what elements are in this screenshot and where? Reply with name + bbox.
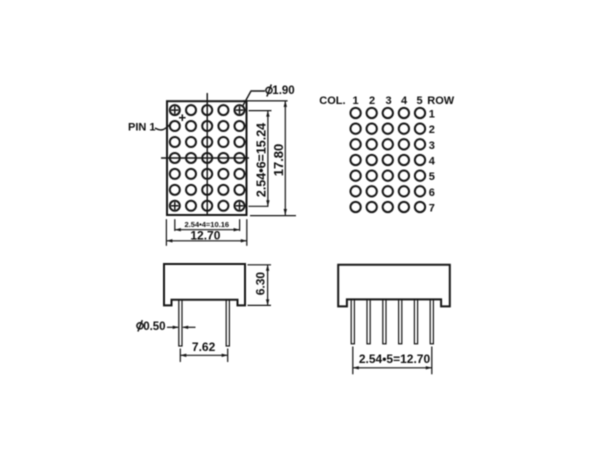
svg-text:PIN 1: PIN 1 (128, 122, 156, 134)
svg-text:17.80: 17.80 (271, 144, 286, 177)
svg-text:4: 4 (401, 95, 408, 107)
svg-text:1: 1 (352, 95, 358, 107)
svg-text:ROW: ROW (427, 95, 455, 107)
svg-text:6.30: 6.30 (253, 272, 267, 296)
svg-text:2.54•6=15.24: 2.54•6=15.24 (255, 123, 269, 197)
svg-text:2: 2 (429, 124, 435, 136)
svg-text:1: 1 (429, 109, 435, 121)
svg-text:6: 6 (429, 187, 435, 199)
svg-text:1.90: 1.90 (272, 85, 294, 97)
svg-text:12.70: 12.70 (190, 229, 220, 243)
svg-text:5: 5 (416, 95, 422, 107)
svg-text:7: 7 (429, 203, 435, 215)
svg-text:3: 3 (385, 95, 391, 107)
svg-text:4: 4 (429, 156, 436, 168)
svg-text:3: 3 (429, 140, 435, 152)
svg-text:2: 2 (369, 95, 375, 107)
svg-text:2.54•5=12.70: 2.54•5=12.70 (359, 352, 431, 366)
svg-text:0.50: 0.50 (143, 321, 165, 333)
svg-text:COL.: COL. (319, 95, 345, 107)
svg-text:7.62: 7.62 (192, 340, 216, 354)
svg-text:5: 5 (429, 171, 435, 183)
